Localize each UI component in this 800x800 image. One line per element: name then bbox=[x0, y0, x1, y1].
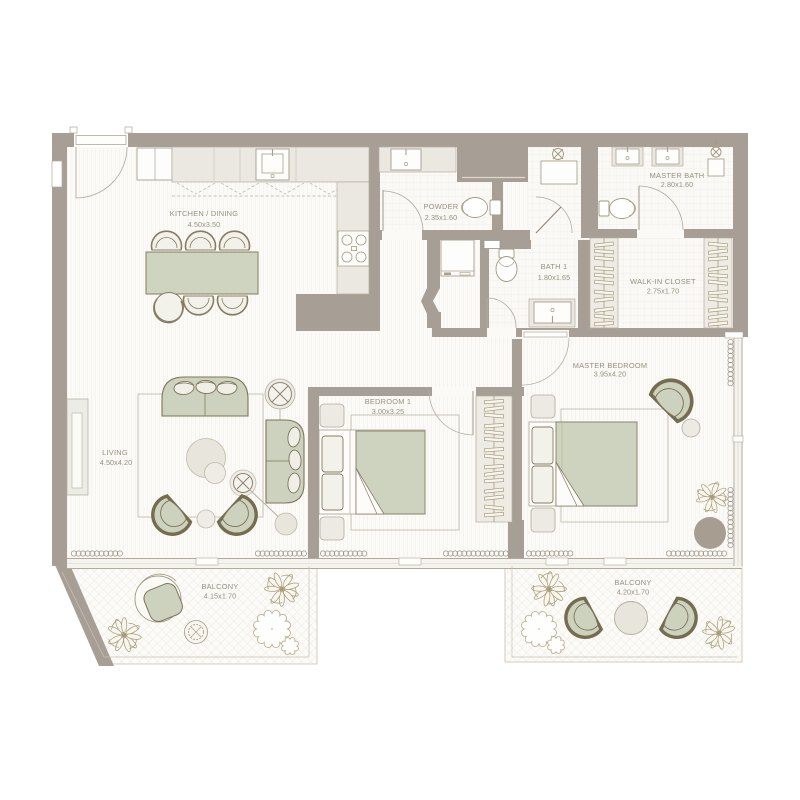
svg-text:4.50x3.50: 4.50x3.50 bbox=[188, 220, 220, 229]
svg-text:POWDER: POWDER bbox=[424, 202, 459, 211]
svg-text:BEDROOM 1: BEDROOM 1 bbox=[365, 397, 412, 406]
svg-text:4.50x4.20: 4.50x4.20 bbox=[100, 458, 132, 467]
svg-text:2.80x1.60: 2.80x1.60 bbox=[661, 180, 693, 189]
svg-text:BALCONY: BALCONY bbox=[614, 578, 651, 587]
svg-text:3.95x4.20: 3.95x4.20 bbox=[594, 370, 626, 379]
svg-text:1.80x1.65: 1.80x1.65 bbox=[538, 273, 570, 282]
svg-text:3.00x3.25: 3.00x3.25 bbox=[372, 407, 404, 416]
svg-text:4.20x1.70: 4.20x1.70 bbox=[617, 588, 649, 597]
svg-text:LIVING: LIVING bbox=[102, 448, 128, 457]
svg-text:BATH 1: BATH 1 bbox=[541, 262, 568, 271]
svg-text:WALK-IN CLOSET: WALK-IN CLOSET bbox=[630, 277, 696, 286]
svg-text:4.15x1.70: 4.15x1.70 bbox=[204, 592, 236, 601]
svg-text:2.75x1.70: 2.75x1.70 bbox=[647, 287, 679, 296]
svg-text:KITCHEN / DINING: KITCHEN / DINING bbox=[170, 209, 238, 218]
svg-text:MASTER BATH: MASTER BATH bbox=[650, 171, 705, 180]
svg-text:BALCONY: BALCONY bbox=[201, 582, 238, 591]
svg-text:2.35x1.60: 2.35x1.60 bbox=[425, 213, 457, 222]
